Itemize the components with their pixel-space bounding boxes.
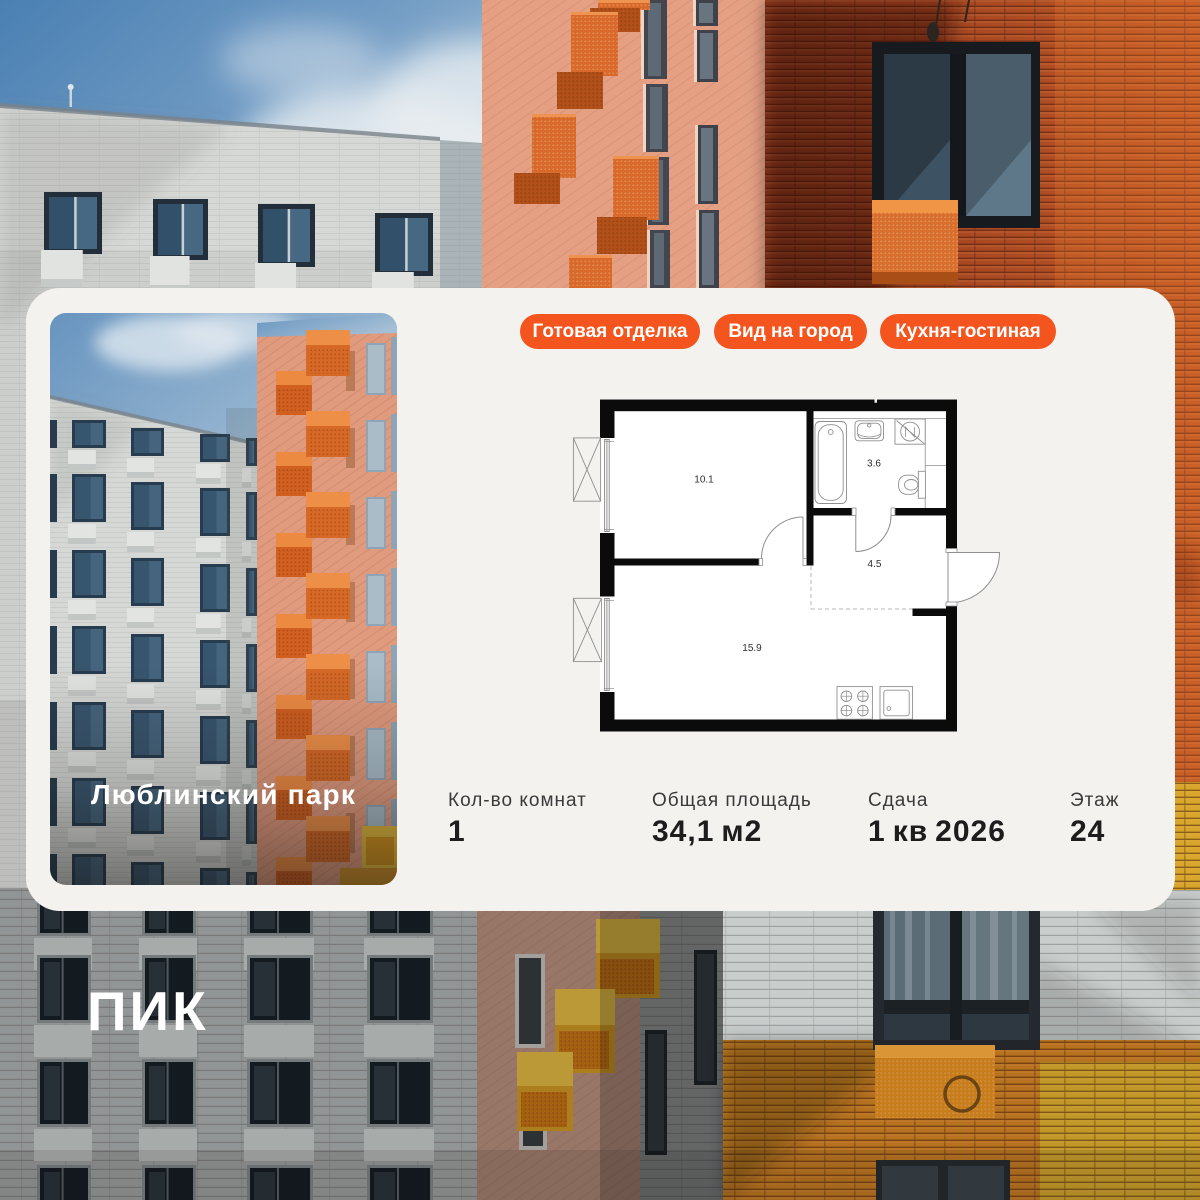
svg-text:10.1: 10.1	[694, 475, 714, 486]
svg-text:15.9: 15.9	[742, 643, 762, 654]
svg-text:4.5: 4.5	[868, 559, 882, 570]
svg-text:3.6: 3.6	[867, 459, 881, 470]
